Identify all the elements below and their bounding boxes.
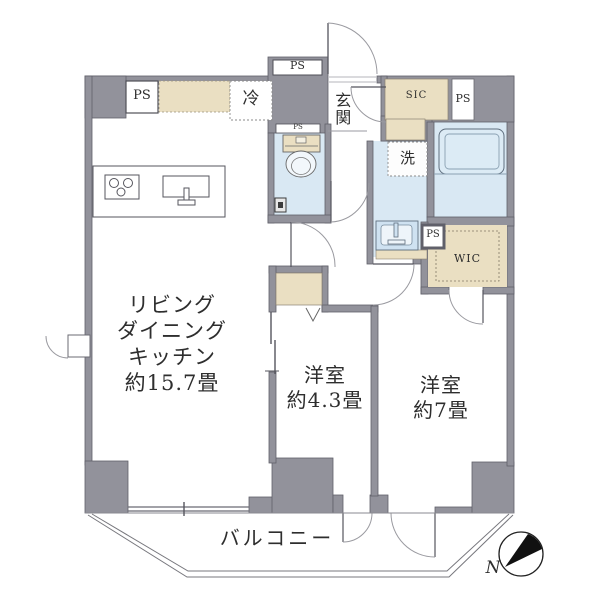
kitchen-island (93, 166, 225, 217)
wall-bath-west (427, 122, 434, 217)
ldk-label-line: ダイニング (86, 318, 258, 344)
wall-step-bed1 (333, 495, 343, 513)
wall-wic-south-right (483, 287, 514, 294)
wall-corner-block-sw (85, 461, 128, 513)
compass-north-label: N (483, 558, 503, 578)
compass (499, 532, 543, 576)
wall-ldk-bed1-upper (269, 266, 276, 312)
stove-burner (124, 179, 133, 188)
wall-block-between-bedrooms (370, 495, 388, 513)
bedroom2-label: 洋室 約7畳 (386, 373, 496, 423)
wall-toilet-west (268, 133, 274, 223)
ldk-label-line: 約15.7畳 (86, 370, 258, 396)
stove-burner (110, 179, 119, 188)
wall-block-south-center (272, 458, 333, 513)
bedroom1-label-line: 約4.3畳 (270, 388, 380, 413)
entrance-label: 玄関 (332, 87, 351, 131)
walk-in-closet-label: WIC (436, 252, 499, 265)
bathroom-fixtures (434, 129, 507, 174)
washroom-door-swing (373, 264, 414, 305)
bedroom1-closet (276, 273, 322, 305)
vanity (376, 221, 418, 250)
wall-east (507, 76, 514, 466)
shoe-closet-extension (386, 119, 425, 140)
bathtub (439, 129, 504, 174)
vanity-faucet-base (388, 240, 405, 244)
closet-folding-door-mark (306, 308, 320, 321)
hall-door-swing (331, 183, 369, 222)
wall-wic-south-left (421, 287, 449, 294)
laundry-label: 洗 (388, 149, 427, 167)
ldk-label-line: リビング (86, 292, 258, 318)
stove-burner (117, 188, 125, 196)
toilet-door-swing (291, 222, 335, 267)
shoe-closet-label: SIC (385, 90, 448, 102)
bedroom2-label-line: 約7畳 (386, 398, 496, 423)
kitchen-counter (159, 81, 230, 112)
wall-bed1-north (322, 305, 378, 312)
kitchen-faucet-base (178, 200, 195, 205)
ldk-label: リビング ダイニング キッチン 約15.7畳 (86, 292, 258, 396)
wic-door-swing (449, 290, 483, 324)
refrigerator-label: 冷 (230, 89, 272, 109)
bedroom2-label-line: 洋室 (386, 373, 496, 398)
wall-corner-block-se (472, 462, 514, 513)
ps-toilet-label: PS (276, 124, 320, 132)
bedroom1-label: 洋室 約4.3畳 (270, 363, 380, 413)
wall-south-bed2 (435, 507, 473, 513)
west-wall-hatch-swing (46, 336, 68, 358)
floor-plan: PS 冷 PS PS 玄関 SIC PS 洗 PS WIC リビング ダイニング… (0, 0, 600, 600)
toilet-bowl (286, 151, 316, 177)
toilet-tank-lid (296, 137, 306, 143)
wall-toilet-south (268, 215, 331, 223)
wall-washroom-west (367, 141, 373, 264)
ps-top-label: PS (273, 60, 322, 72)
ps-kitchen-label: PS (126, 88, 158, 104)
front-door-swing (328, 23, 377, 74)
ldk-label-line: キッチン (86, 344, 258, 370)
vanity-cabinet-strip (376, 250, 427, 259)
vanity-faucet (394, 223, 398, 237)
wall-toilet-east (325, 124, 331, 223)
balcony-label: バルコニー (197, 526, 357, 550)
bedroom2-balcony-door-swing (391, 513, 435, 557)
toilet-control-button (278, 202, 283, 208)
ps-entry-label: PS (452, 92, 474, 105)
ps-wic-label: PS (422, 229, 444, 241)
kitchen-faucet (184, 188, 189, 201)
wall-closet-north (269, 266, 328, 273)
wall-west (85, 76, 92, 465)
bedroom1-label-line: 洋室 (270, 363, 380, 388)
